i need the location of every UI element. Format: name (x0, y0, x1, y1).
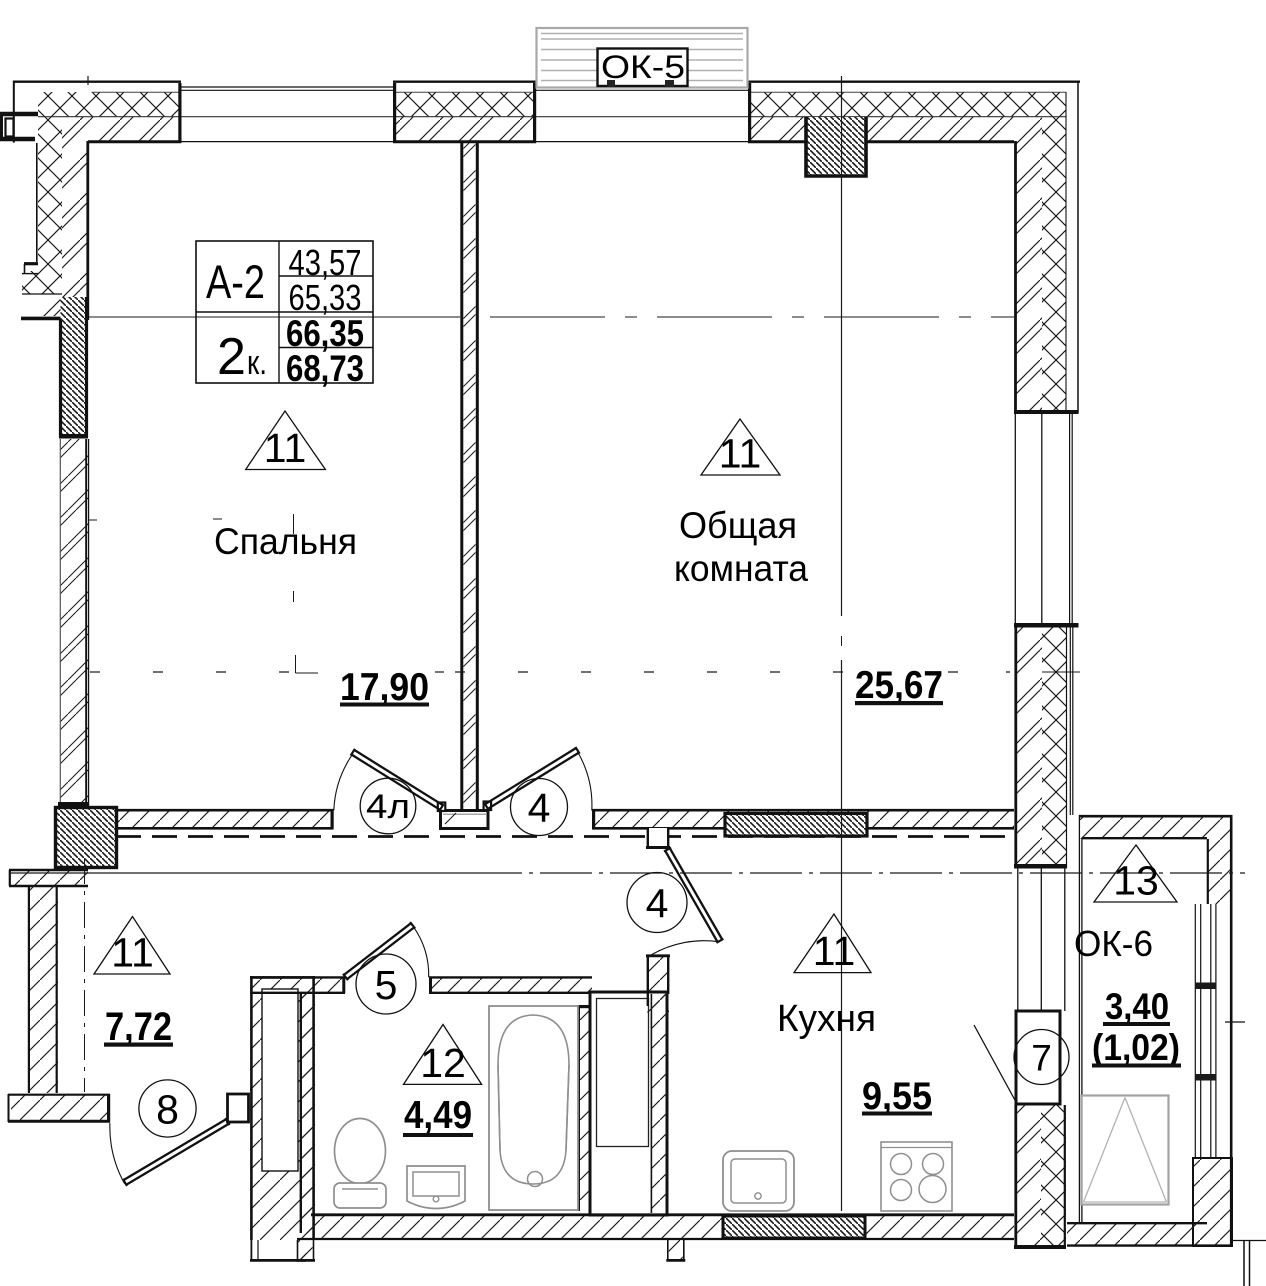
svg-text:4,49: 4,49 (404, 1094, 472, 1137)
svg-text:65,33: 65,33 (289, 277, 362, 318)
svg-text:ОК-5: ОК-5 (601, 49, 685, 85)
svg-text:5: 5 (375, 962, 398, 1008)
svg-text:3,40: 3,40 (1105, 986, 1169, 1027)
svg-text:13: 13 (1113, 858, 1159, 904)
svg-text:8: 8 (156, 1086, 179, 1132)
svg-text:11: 11 (719, 431, 762, 477)
svg-text:Спальня: Спальня (214, 521, 357, 562)
svg-text:(1,02): (1,02) (1092, 1027, 1180, 1068)
svg-text:2: 2 (217, 328, 246, 386)
svg-text:Общая: Общая (679, 505, 797, 546)
svg-text:Кухня: Кухня (777, 998, 876, 1040)
svg-text:11: 11 (813, 928, 856, 974)
svg-text:7,72: 7,72 (105, 1005, 172, 1049)
svg-text:11: 11 (111, 930, 154, 976)
svg-text:А-2: А-2 (206, 255, 265, 308)
svg-text:комната: комната (674, 548, 808, 589)
svg-text:11: 11 (264, 425, 307, 471)
svg-text:к.: к. (247, 344, 267, 382)
svg-text:4: 4 (646, 880, 669, 926)
svg-text:4: 4 (528, 785, 551, 831)
svg-text:12: 12 (420, 1040, 466, 1086)
svg-text:7: 7 (1031, 1037, 1052, 1078)
svg-text:ОК-6: ОК-6 (1074, 923, 1153, 964)
svg-text:68,73: 68,73 (286, 348, 364, 389)
svg-text:25,67: 25,67 (855, 664, 943, 707)
svg-text:4л: 4л (366, 788, 410, 826)
